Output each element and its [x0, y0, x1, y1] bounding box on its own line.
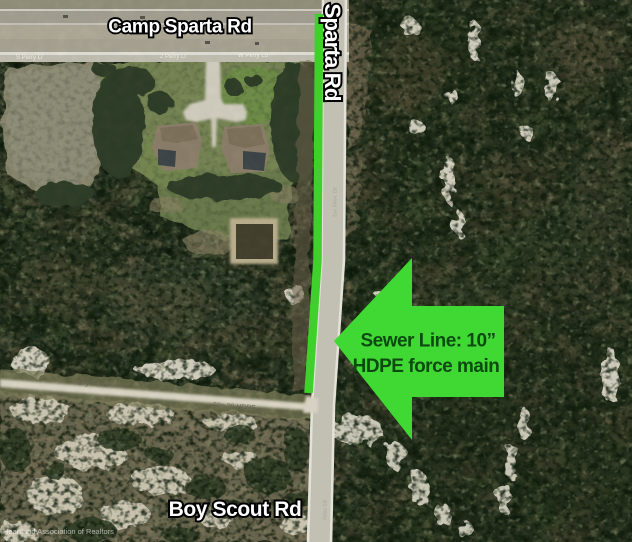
svg-text:81 Hwy: 81 Hwy	[321, 500, 327, 520]
svg-text:Sewer Line: 10”: Sewer Line: 10”	[360, 331, 495, 352]
svg-text:Camp Sparta Rd: Camp Sparta Rd	[108, 17, 252, 38]
svg-text:HDPE force main: HDPE force main	[353, 356, 500, 377]
svg-text:Sparta Rd: Sparta Rd	[320, 3, 345, 101]
svg-text:81 Hwy Rd: 81 Hwy Rd	[331, 187, 337, 216]
svg-text:2 Perry Lr: 2 Perry Lr	[160, 54, 186, 60]
svg-text:W Perry Ld: W Perry Ld	[238, 53, 268, 59]
svg-text:Boy Scout Rd: Boy Scout Rd	[169, 498, 302, 521]
svg-text:Heartland Association of Realt: Heartland Association of Realtors	[3, 527, 114, 536]
svg-text:S Perry Lr: S Perry Lr	[16, 55, 43, 61]
